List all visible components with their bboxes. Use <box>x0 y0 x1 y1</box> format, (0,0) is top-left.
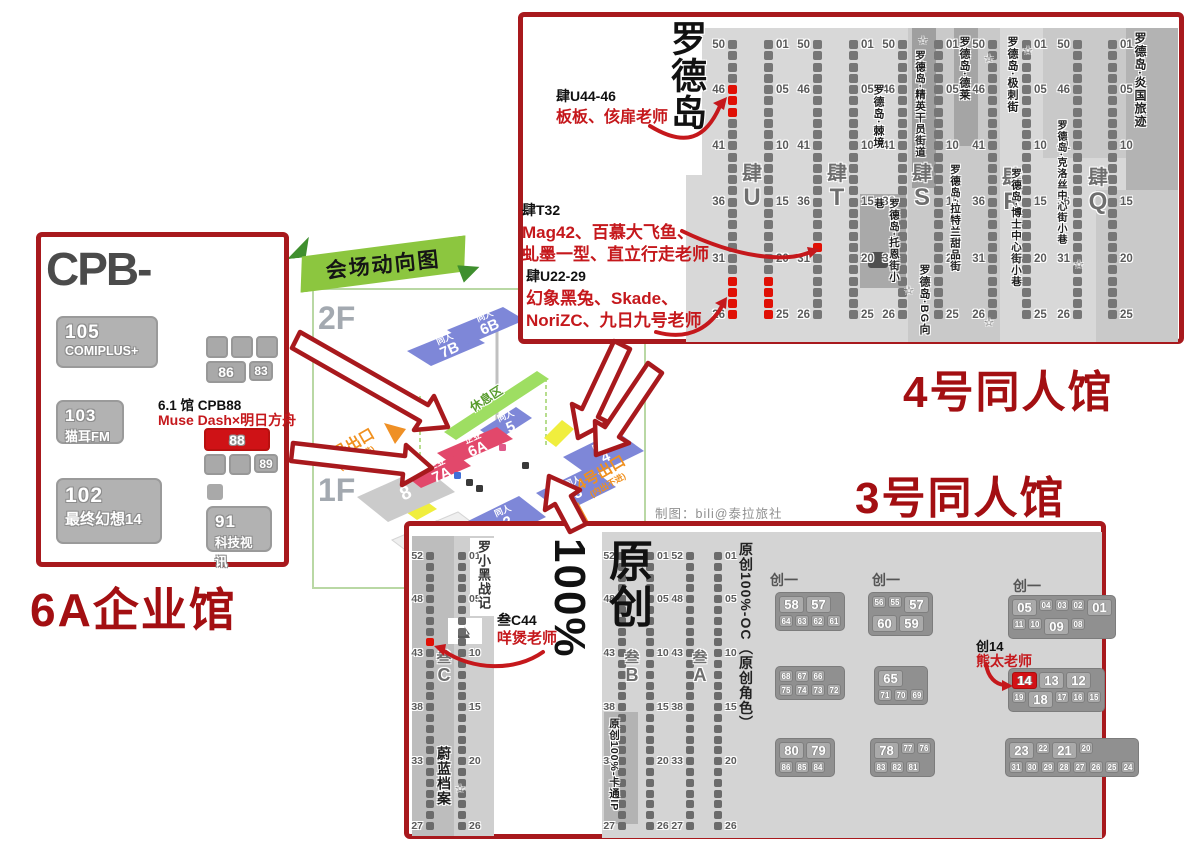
booth-cell: 30 <box>1025 761 1039 773</box>
booth-cell: 31 <box>728 254 737 263</box>
booth-number: 50 <box>882 39 895 51</box>
booth-column-t-left: 504641363126 <box>813 40 822 319</box>
booth-cell <box>849 153 858 162</box>
booth-cell <box>426 779 434 787</box>
medical-icon <box>499 444 506 451</box>
booth-cell: 25 <box>934 310 943 319</box>
booth-cell <box>813 186 822 195</box>
booth-cell: 01 <box>714 552 722 560</box>
booth-cell <box>813 51 822 60</box>
booth-cell <box>714 692 722 700</box>
booth-cell <box>988 130 997 139</box>
booth-cell <box>728 288 737 297</box>
booth-cell: 01 <box>1108 40 1117 49</box>
booth-cell: 74 <box>795 684 809 696</box>
booth-cell <box>849 51 858 60</box>
cpb88-collab: Muse Dash×明日方舟 <box>158 410 296 430</box>
booth-number: 31 <box>712 253 725 265</box>
street-bg: 罗德岛·BG向 <box>916 264 932 336</box>
star-icon: ☆ <box>984 316 994 329</box>
booth-cell: 05 <box>934 85 943 94</box>
booth-cell: 22 <box>1036 742 1050 754</box>
booth-cell: 10 <box>1022 141 1031 150</box>
booth-number: 52 <box>671 550 683 562</box>
booth-cell-89: 89 <box>254 454 278 473</box>
booth-cell <box>714 628 722 636</box>
booth-cell: 33 <box>426 757 434 765</box>
booth-cell <box>728 232 737 241</box>
booth-cell: 60 <box>872 615 897 632</box>
floor-1f-label: 1F <box>318 472 355 509</box>
booth-cell: 20 <box>849 254 858 263</box>
booth-cell <box>686 574 694 582</box>
booth-cell: 26 <box>728 310 737 319</box>
booth-cell <box>256 336 278 358</box>
booth-cell: 25 <box>849 310 858 319</box>
booth-cell <box>728 265 737 274</box>
booth-cell <box>934 209 943 218</box>
booth-cell: 75 <box>779 684 793 696</box>
booth-cell <box>1108 299 1117 308</box>
booth-cell <box>934 51 943 60</box>
booth-cell <box>764 209 773 218</box>
aisle-label-t: 肆T <box>822 164 852 210</box>
booth-number: 43 <box>671 647 683 659</box>
booth-cell: 72 <box>827 684 841 696</box>
booth-cell <box>458 736 466 744</box>
booth-cell: 26 <box>714 822 722 830</box>
booth-cell: 59 <box>899 615 924 632</box>
booth-number: 10 <box>1034 140 1047 152</box>
booth-cell: 01 <box>764 40 773 49</box>
booth-column-a-right: 010510152026 <box>714 552 722 830</box>
booth-cell <box>849 265 858 274</box>
booth-cell: 09 <box>1044 618 1069 635</box>
booth-cell: 26 <box>813 310 822 319</box>
booth-102: 102 最终幻想14 <box>56 478 162 544</box>
booth-cell <box>764 63 773 72</box>
booth-cell: 41 <box>813 141 822 150</box>
booth-cell: 27 <box>686 822 694 830</box>
booth-cell <box>849 288 858 297</box>
booth-cell <box>764 299 773 308</box>
booth-cell: 31 <box>1009 761 1023 773</box>
booth-cell: 76 <box>917 742 931 754</box>
booth-cell <box>849 130 858 139</box>
booth-cell: 26 <box>898 310 907 319</box>
booth-cell: 50 <box>898 40 907 49</box>
hall4-title: 罗德岛 <box>660 20 712 150</box>
booth-cell <box>1108 74 1117 83</box>
booth-cell <box>1108 51 1117 60</box>
booth-cell: 27 <box>426 822 434 830</box>
booth-number: 20 <box>469 755 481 767</box>
booth-cell <box>686 800 694 808</box>
booth-cell: 15 <box>714 703 722 711</box>
booth-cell: 36 <box>728 198 737 207</box>
booth-cell <box>1108 119 1117 128</box>
booth-cell <box>1073 220 1082 229</box>
booth-cell <box>458 714 466 722</box>
booth-cell <box>204 454 226 475</box>
booth-cell: 57 <box>806 596 831 613</box>
booth-cell: 50 <box>1073 40 1082 49</box>
small-gray-booth <box>207 484 223 500</box>
booth-cell: 36 <box>1073 198 1082 207</box>
booth-cell <box>458 671 466 679</box>
booth-cell <box>934 108 943 117</box>
booth-number: 25 <box>861 309 874 321</box>
booth-cell: 66 <box>811 670 825 682</box>
booth-cell: 10 <box>458 649 466 657</box>
booth-cell <box>1022 108 1031 117</box>
booth-cell <box>714 725 722 733</box>
booth-cell: 01 <box>849 40 858 49</box>
booth-cell <box>1108 288 1117 297</box>
booth-cell <box>686 790 694 798</box>
booth-number: 26 <box>469 820 481 832</box>
booth-number: 01 <box>1120 39 1133 51</box>
booth-cell <box>728 74 737 83</box>
booth-cell <box>714 584 722 592</box>
creative-block: 68676675747372 <box>775 666 845 700</box>
booth-cell <box>813 209 822 218</box>
toilet-icon <box>454 472 461 479</box>
booth-cell <box>988 74 997 83</box>
booth-cell <box>849 96 858 105</box>
booth-cell: 20 <box>934 254 943 263</box>
facility-icon <box>466 479 473 486</box>
booth-cell <box>1022 119 1031 128</box>
booth-cell <box>988 175 997 184</box>
booth-number: 26 <box>725 820 737 832</box>
booth-number: 25 <box>1120 309 1133 321</box>
booth-cell <box>934 96 943 105</box>
booth-cell <box>1073 209 1082 218</box>
booth-cell <box>764 130 773 139</box>
booth-number: 10 <box>776 140 789 152</box>
label-oc: 原创100%-OC（原创角色） <box>736 542 756 757</box>
booth-cell: 20 <box>764 254 773 263</box>
booth-cell <box>458 725 466 733</box>
booth-cell: 20 <box>458 757 466 765</box>
booth-number: 36 <box>797 196 810 208</box>
booth-cell <box>1022 153 1031 162</box>
booth-cell <box>686 617 694 625</box>
booth-cell <box>764 119 773 128</box>
booth-cell <box>934 63 943 72</box>
booth-number: 27 <box>411 820 423 832</box>
street-yanguo: 罗德岛·炎国旅迹 <box>1132 32 1149 187</box>
booth-cell: 50 <box>728 40 737 49</box>
hall3-label: 3号同人馆 <box>855 462 1065 526</box>
facility-icon <box>522 462 529 469</box>
venue-map-page: 2F 1F 同人7B 同人6B 同人5 企业6A 企业7A 8 同人2 同人3 … <box>0 0 1192 851</box>
booth-cell: 21 <box>1052 742 1077 759</box>
booth-cell <box>813 277 822 286</box>
booth-number: 10 <box>469 647 481 659</box>
booth-cell: 31 <box>813 254 822 263</box>
booth-cell <box>686 692 694 700</box>
booth-cell: 05 <box>1108 85 1117 94</box>
hall6a-label: 6A企业馆 <box>30 574 237 640</box>
booth-cell <box>426 563 434 571</box>
booth-cell <box>458 606 466 614</box>
booth-cell <box>813 175 822 184</box>
booth-cell <box>1108 108 1117 117</box>
star-icon: ☆ <box>984 52 994 65</box>
booth-cell <box>988 243 997 252</box>
booth-cell <box>934 232 943 241</box>
booth-cell <box>934 220 943 229</box>
booth-cell <box>1022 63 1031 72</box>
booth-cell <box>1022 74 1031 83</box>
booth-cell <box>728 108 737 117</box>
booth-number: 25 <box>1034 309 1047 321</box>
booth-number: 38 <box>411 701 423 713</box>
booth-number: 52 <box>411 550 423 562</box>
booth-cell: 85 <box>795 761 809 773</box>
booth-cell <box>1073 74 1082 83</box>
booth-cell <box>988 96 997 105</box>
booth-cell: 50 <box>813 40 822 49</box>
booth-number: 10 <box>725 647 737 659</box>
booth-column-c-left: 524843383327 <box>426 552 434 830</box>
street-delai: 罗德岛·德莱 <box>956 36 972 144</box>
floor-2f-label: 2F <box>318 300 355 337</box>
booth-cell: 26 <box>1089 761 1103 773</box>
booth-cell: 64 <box>779 615 793 627</box>
booth-cell <box>813 130 822 139</box>
booth-cell <box>1073 232 1082 241</box>
booth-cell <box>1108 220 1117 229</box>
booth-cell <box>714 811 722 819</box>
booth-cell <box>813 119 822 128</box>
booth-cell <box>934 277 943 286</box>
street-jijing: 罗德岛·棘境 <box>870 84 886 180</box>
street-jici: 罗德岛·极刺街 <box>1004 36 1020 166</box>
booth-cell: 20 <box>1108 254 1117 263</box>
booth-cell <box>426 746 434 754</box>
booth-cell <box>686 606 694 614</box>
booth-cell <box>988 299 997 308</box>
booth-cell <box>813 74 822 83</box>
booth-number: 33 <box>671 755 683 767</box>
booth-cell <box>898 119 907 128</box>
booth-number: 31 <box>797 253 810 265</box>
booth-cell <box>1073 130 1082 139</box>
booth-cell <box>1108 232 1117 241</box>
street-tuoen: 罗德岛·托恩街小巷 <box>872 198 902 286</box>
booth-cell: 77 <box>901 742 915 754</box>
booth-cell <box>898 51 907 60</box>
booth-cell: 46 <box>813 85 822 94</box>
hall3-area-title: 原创100% <box>544 538 658 743</box>
booth-number: 36 <box>712 196 725 208</box>
booth-91: 91 科技视讯 <box>206 506 272 552</box>
booth-cell <box>1108 243 1117 252</box>
booth-cell <box>1108 130 1117 139</box>
booth-cell <box>458 617 466 625</box>
booth-number: 05 <box>657 593 669 605</box>
booth-cell: 46 <box>898 85 907 94</box>
booth-cell: 15 <box>1087 691 1101 703</box>
booth-cell <box>646 811 654 819</box>
booth-cell <box>1022 96 1031 105</box>
booth-number: 01 <box>861 39 874 51</box>
booth-cell <box>1073 51 1082 60</box>
booth-number: 26 <box>882 309 895 321</box>
cpb-logo: CPB- <box>46 242 150 296</box>
booth-cell <box>728 119 737 128</box>
booth-cell <box>686 628 694 636</box>
credit-text: 制图：bili@泰拉旅社 <box>655 503 782 522</box>
booth-cell <box>714 736 722 744</box>
booth-cell <box>988 265 997 274</box>
booth-cell <box>458 660 466 668</box>
booth-cell <box>646 768 654 776</box>
booth-cell <box>728 243 737 252</box>
booth-cell <box>714 671 722 679</box>
booth-cell <box>1073 243 1082 252</box>
booth-cell <box>728 299 737 308</box>
booth-cell: 24 <box>1121 761 1135 773</box>
booth-number: 26 <box>657 820 669 832</box>
booth-cell <box>988 119 997 128</box>
booth-number: 20 <box>1034 253 1047 265</box>
annotation-artists: 咩煲老师 <box>497 627 557 648</box>
booth-cell <box>849 277 858 286</box>
hall4-label: 4号同人馆 <box>903 356 1113 420</box>
booth-cell: 08 <box>1071 618 1085 630</box>
booth-cell <box>898 186 907 195</box>
booth-number: 15 <box>657 701 669 713</box>
booth-cell: 10 <box>934 141 943 150</box>
booth-cell: 20 <box>714 757 722 765</box>
creative-block: 787776838281 <box>870 738 935 777</box>
booth-cell: 81 <box>906 761 920 773</box>
booth-cell: 20 <box>646 757 654 765</box>
booth-cell: 26 <box>1073 310 1082 319</box>
booth-cell <box>686 779 694 787</box>
booth-cell <box>1073 153 1082 162</box>
booth-cell: 18 <box>1028 691 1053 708</box>
booth-cell <box>1073 108 1082 117</box>
booth-cell <box>714 768 722 776</box>
booth-cell: 25 <box>764 310 773 319</box>
booth-cell <box>764 220 773 229</box>
aisle-label-q: 肆Q <box>1083 168 1113 214</box>
booth-cell <box>934 265 943 274</box>
star-icon: ☆ <box>455 782 465 795</box>
booth-cell <box>426 617 434 625</box>
creative-block: 1413121918171615 <box>1008 668 1105 712</box>
booth-cell <box>728 175 737 184</box>
booth-cell <box>646 779 654 787</box>
booth-cell <box>728 277 737 286</box>
booth-cell <box>988 232 997 241</box>
booth-cell: 15 <box>458 703 466 711</box>
booth-cell <box>231 336 253 358</box>
booth-cell <box>714 660 722 668</box>
booth-cell <box>646 800 654 808</box>
booth-number: 41 <box>797 140 810 152</box>
booth-number: 01 <box>776 39 789 51</box>
booth-cell <box>898 175 907 184</box>
booth-cell <box>458 574 466 582</box>
booth-cell <box>934 74 943 83</box>
annotation-artists: 板板、侅扉老师 <box>556 103 668 127</box>
booth-cell <box>458 638 466 646</box>
booth-cell <box>686 584 694 592</box>
booth-number: 48 <box>411 593 423 605</box>
booth-cell: 41 <box>728 141 737 150</box>
booth-cell: 10 <box>849 141 858 150</box>
booth-cell: 78 <box>874 742 899 759</box>
booth-cell <box>728 186 737 195</box>
booth-cell: 27 <box>618 822 626 830</box>
facility-icon <box>476 485 483 492</box>
booth-cell: 56 <box>872 596 886 608</box>
booth-cell: 19 <box>1012 691 1026 703</box>
booth-cell: 16 <box>1071 691 1085 703</box>
booth-cell: 20 <box>1079 742 1093 754</box>
booth-cell <box>714 606 722 614</box>
booth-cell <box>714 746 722 754</box>
booth-cell <box>813 288 822 297</box>
annotation-artists: 虬墨一型、直立行走老师 <box>522 240 709 265</box>
booth-cell <box>764 51 773 60</box>
booth-grid-88-89: 88 89 <box>204 428 278 475</box>
booth-cell <box>728 130 737 139</box>
booth-cell <box>934 243 943 252</box>
booth-cell <box>686 811 694 819</box>
booth-cell <box>849 243 858 252</box>
booth-cell: 14 <box>1012 672 1037 689</box>
booth-cell <box>686 746 694 754</box>
booth-cell: 84 <box>811 761 825 773</box>
booth-cell: 48 <box>426 595 434 603</box>
booth-cell <box>849 232 858 241</box>
booth-cell <box>849 74 858 83</box>
booth-cell <box>646 746 654 754</box>
booth-number: 46 <box>1057 84 1070 96</box>
booth-cell: 41 <box>1073 141 1082 150</box>
booth-cell: 41 <box>988 141 997 150</box>
booth-cell: 05 <box>1022 85 1031 94</box>
booth-cell <box>1073 299 1082 308</box>
booth-number: 25 <box>776 309 789 321</box>
booth-cell <box>686 736 694 744</box>
booth-cell: 38 <box>686 703 694 711</box>
booth-cell <box>764 277 773 286</box>
yellow-block <box>544 420 574 447</box>
booth-number: 27 <box>671 820 683 832</box>
booth-cell <box>813 232 822 241</box>
booth-cell: 05 <box>458 595 466 603</box>
booth-cell: 36 <box>813 198 822 207</box>
booth-cell: 26 <box>646 822 654 830</box>
booth-number: 20 <box>657 755 669 767</box>
booth-cell <box>426 628 434 636</box>
booth-cell <box>934 119 943 128</box>
booth-cell <box>686 563 694 571</box>
booth-cell <box>898 164 907 173</box>
booth-cell <box>764 232 773 241</box>
booth-cell: 29 <box>1041 761 1055 773</box>
booth-cell: 33 <box>686 757 694 765</box>
star-icon: ☆ <box>1074 258 1084 271</box>
